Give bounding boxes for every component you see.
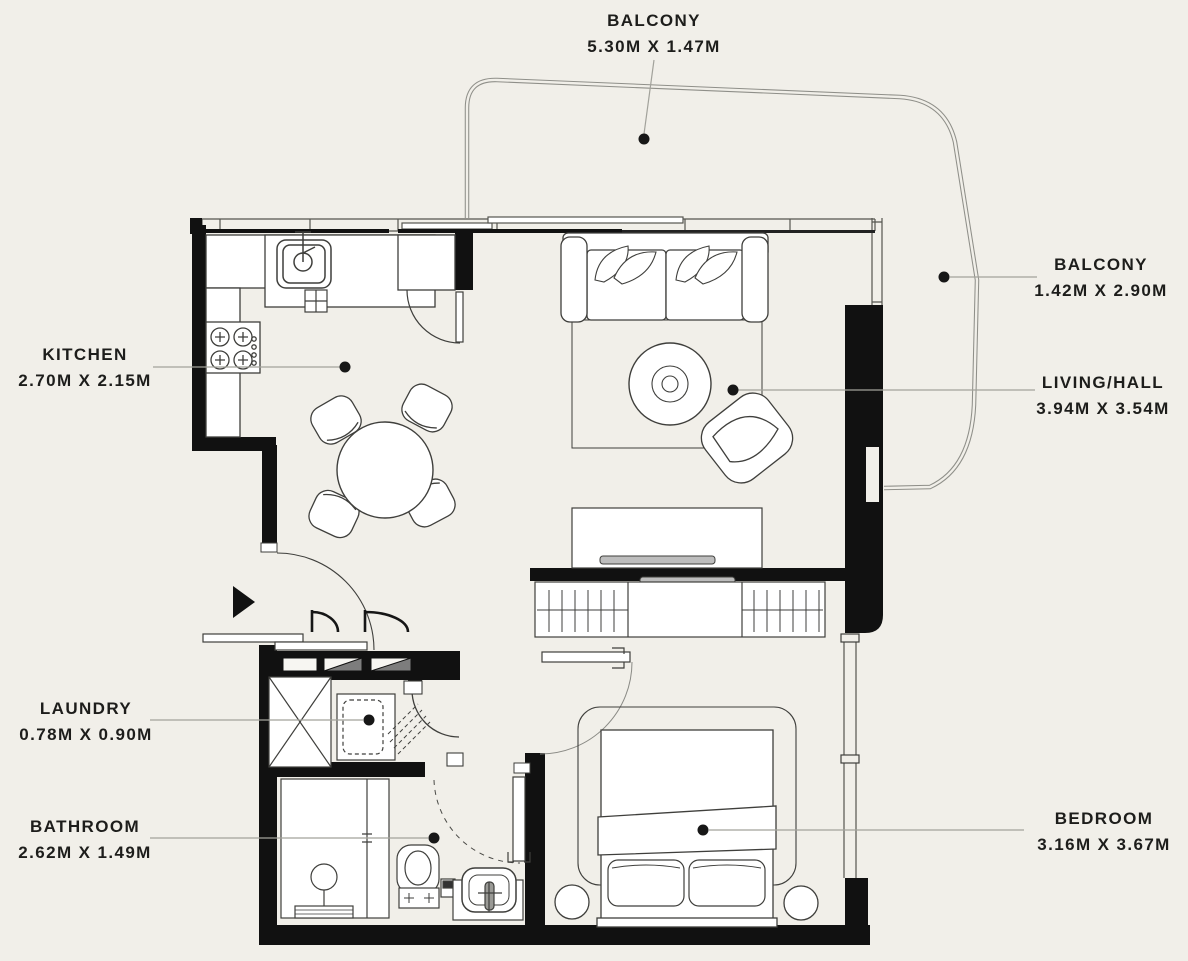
room-label-laundry: LAUNDRY 0.78M X 0.90M <box>19 696 152 748</box>
room-dims: 3.16M X 3.67M <box>1037 832 1170 858</box>
stove <box>206 322 260 373</box>
room-dims: 0.78M X 0.90M <box>19 722 152 748</box>
top-window-band <box>202 217 875 231</box>
room-label-kitchen: KITCHEN 2.70M X 2.15M <box>18 342 151 394</box>
kitchen-grid-box <box>305 290 327 312</box>
room-label-bedroom: BEDROOM 3.16M X 3.67M <box>1037 806 1170 858</box>
room-label-living-hall: LIVING/HALL 3.94M X 3.54M <box>1036 370 1169 422</box>
room-name: LIVING/HALL <box>1036 370 1169 396</box>
room-label-balcony-top: BALCONY 5.30M X 1.47M <box>587 8 720 60</box>
armchair <box>693 385 800 491</box>
room-name: BALCONY <box>587 8 720 34</box>
room-dims: 2.62M X 1.49M <box>18 840 151 866</box>
floor-plan-drawing <box>0 0 1188 961</box>
kitchen-sink <box>277 232 331 288</box>
room-name: BALCONY <box>1034 252 1167 278</box>
nightstand-right <box>784 886 818 920</box>
room-name: KITCHEN <box>18 342 151 368</box>
wardrobe-sliding-door <box>542 648 630 668</box>
room-name: BATHROOM <box>18 814 151 840</box>
room-name: LAUNDRY <box>19 696 152 722</box>
wardrobe <box>535 582 825 637</box>
balcony-access-window <box>866 447 879 502</box>
laundry-shaft <box>269 677 331 767</box>
laundry-vent-hatch <box>283 658 411 671</box>
washing-machine <box>337 694 430 760</box>
shower <box>281 779 389 918</box>
laundry-door <box>404 681 463 766</box>
closet-sliding-doors <box>203 634 367 650</box>
toilet <box>397 845 455 908</box>
vanity-sink <box>453 868 523 920</box>
sofa <box>561 233 768 322</box>
room-label-balcony-right: BALCONY 1.42M X 2.90M <box>1034 252 1167 304</box>
dining-table <box>337 422 433 518</box>
entry-arrow-icon <box>233 586 255 618</box>
tv-living <box>600 556 715 564</box>
floor-plan-page: BALCONY 5.30M X 1.47M BALCONY 1.42M X 2.… <box>0 0 1188 961</box>
room-dims: 1.42M X 2.90M <box>1034 278 1167 304</box>
bedroom-door <box>434 777 530 863</box>
room-label-bathroom: BATHROOM 2.62M X 1.49M <box>18 814 151 866</box>
room-dims: 5.30M X 1.47M <box>587 34 720 60</box>
room-dims: 2.70M X 2.15M <box>18 368 151 394</box>
nightstand-left <box>555 885 589 919</box>
room-dims: 3.94M X 3.54M <box>1036 396 1169 422</box>
room-name: BEDROOM <box>1037 806 1170 832</box>
coffee-table <box>629 343 711 425</box>
closet-swing-doors <box>312 610 408 632</box>
bedroom-right-window <box>841 634 859 878</box>
